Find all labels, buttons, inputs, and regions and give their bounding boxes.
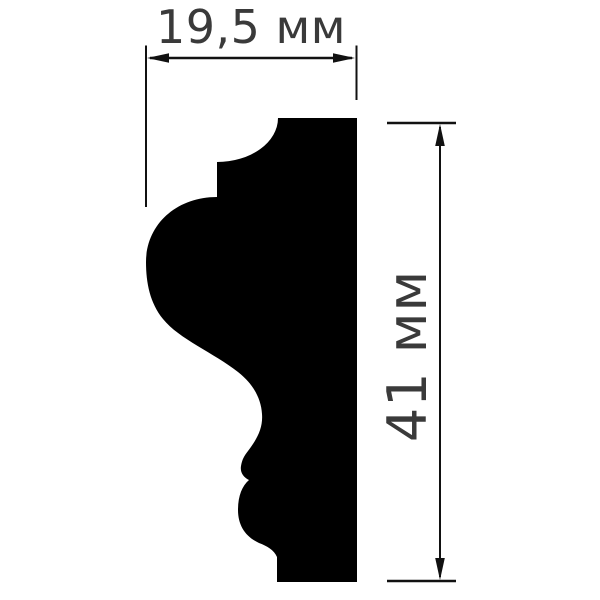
width-dimension-label: 19,5 мм [156, 0, 346, 54]
height-arrow-up-icon [435, 124, 445, 146]
drawing-canvas: 19,5 мм 41 мм [0, 0, 600, 600]
height-dimension: 41 мм [376, 123, 456, 581]
width-arrow-left-icon [147, 53, 169, 63]
molding-profile-silhouette [146, 118, 357, 582]
width-arrow-right-icon [333, 53, 355, 63]
height-dimension-label: 41 мм [376, 270, 439, 442]
height-arrow-down-icon [435, 558, 445, 580]
molding-profile-drawing: 19,5 мм 41 мм [0, 0, 600, 600]
